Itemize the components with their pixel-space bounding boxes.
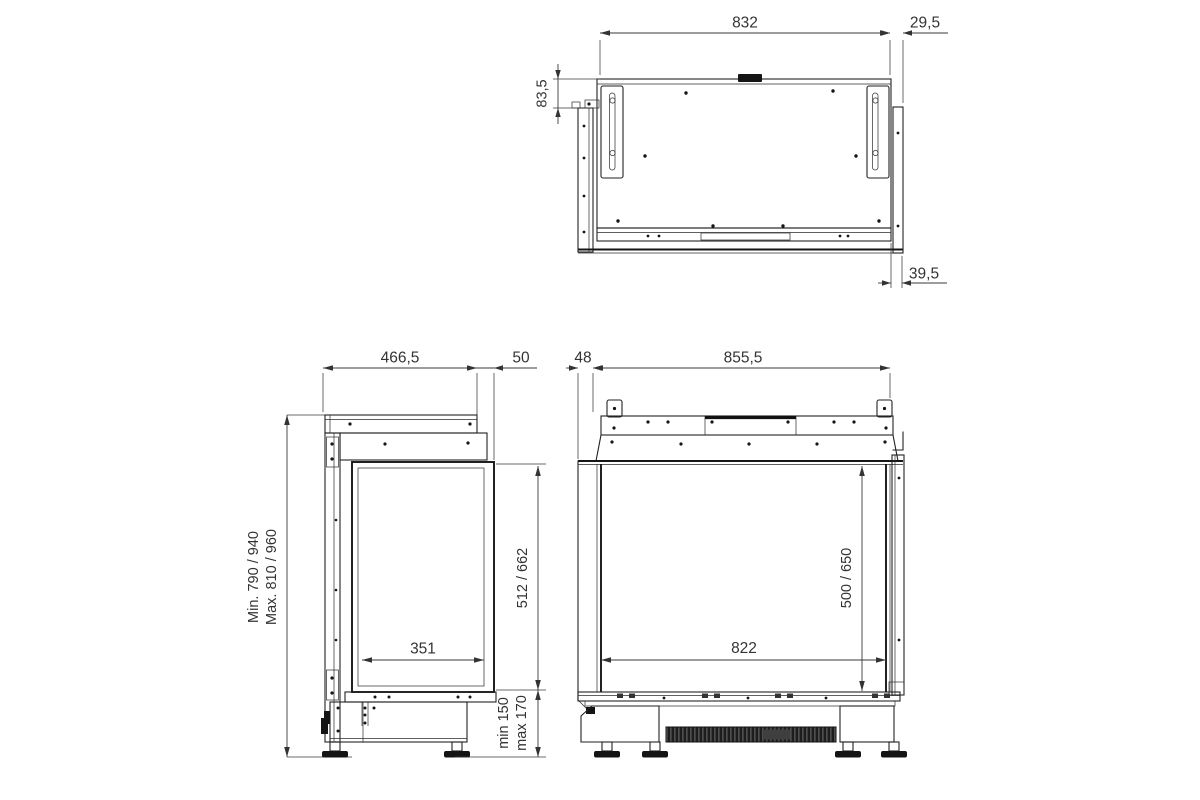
dim-front-left-offset-label: 48 (574, 350, 591, 367)
dim-side-glass-offset-label: 50 (512, 350, 530, 367)
dim-front-width-label: 855,5 (724, 350, 763, 367)
side-view-top-cap (325, 415, 487, 460)
dim-front-left-offset: 48 (566, 350, 604, 460)
front-mounting-tabs (607, 400, 892, 417)
mounting-bracket-left (601, 86, 623, 178)
dim-side-plinth-min-label: min 150 (496, 697, 512, 749)
front-side-glass-strip (889, 455, 904, 695)
front-view-feet (594, 742, 907, 758)
dim-top-right-lower-label: 39,5 (909, 266, 939, 283)
top-view-body (597, 74, 891, 241)
dim-side-height-max-label: Max. 810 / 960 (264, 529, 280, 625)
dim-front-glass-width: 822 (601, 640, 886, 660)
technical-drawing: 832 29,5 83,5 39,5 (0, 0, 1200, 800)
side-view-feet (322, 742, 470, 758)
vent-grille (666, 727, 836, 742)
dim-side-plinth: min 150 max 170 (455, 690, 546, 757)
front-view: 48 855,5 (566, 350, 907, 758)
drawing-svg: 832 29,5 83,5 39,5 (0, 0, 1200, 800)
dim-side-height-min-label: Min. 790 / 940 (246, 531, 262, 623)
front-top-rails (596, 416, 903, 461)
side-glass-plan-right (893, 107, 903, 253)
flue-tab (738, 74, 762, 82)
front-bottom-rail (578, 692, 900, 714)
dim-side-glass-height: 512 / 662 (496, 464, 546, 690)
dim-front-width: 855,5 (593, 350, 890, 399)
top-view: 832 29,5 83,5 39,5 (535, 15, 949, 289)
vent-connector (764, 730, 790, 740)
side-glass-panel (352, 462, 494, 692)
front-glass-plan (578, 250, 903, 254)
dim-top-side-inset-label: 83,5 (535, 79, 551, 107)
dim-side-glass-width-label: 351 (410, 641, 436, 658)
dim-side-glass-width: 351 (362, 641, 484, 661)
dim-top-side-inset: 83,5 (535, 64, 601, 124)
dim-side-depth: 466,5 (323, 350, 477, 417)
mounting-bracket-right (867, 86, 889, 178)
side-glass-plan-left (572, 100, 599, 252)
side-view-rear-channel (321, 433, 340, 742)
dim-side-glass-offset: 50 (477, 350, 537, 461)
dim-top-width-label: 832 (732, 15, 758, 32)
dim-front-glass-height-label: 500 / 650 (839, 548, 855, 608)
side-view: 466,5 50 Min. 790 / 940 Max. 810 / 960 (246, 350, 546, 758)
top-view-fasteners (616, 89, 880, 237)
dim-side-plinth-max-label: max 170 (514, 695, 530, 751)
dim-front-glass-height: 500 / 650 (839, 466, 862, 691)
dim-top-right-upper: 29,5 (877, 15, 948, 104)
dim-side-depth-label: 466,5 (381, 350, 420, 367)
front-plinth (581, 706, 894, 742)
side-view-base (324, 692, 496, 742)
dim-front-glass-width-label: 822 (731, 640, 757, 657)
dim-side-height: Min. 790 / 940 Max. 810 / 960 (246, 415, 352, 757)
dim-side-glass-height-label: 512 / 662 (515, 548, 531, 608)
dim-top-right-upper-label: 29,5 (910, 15, 940, 32)
dim-top-width: 832 (600, 15, 890, 76)
